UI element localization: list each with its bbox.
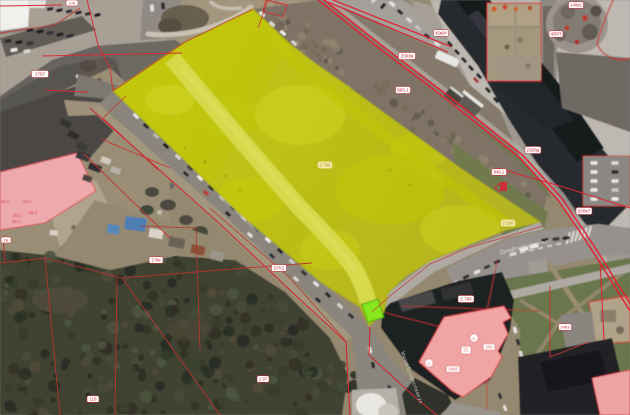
svg-text:140в2: 140в2 — [570, 3, 582, 8]
svg-text:1Б: 1Б — [4, 238, 9, 243]
svg-text:995.1: 995.1 — [397, 88, 409, 93]
svg-text:68.3: 68.3 — [1, 199, 10, 204]
svg-text:45РП: 45РП — [551, 32, 561, 37]
svg-text:24КЗ: 24КЗ — [560, 325, 570, 330]
svg-text:Б7К2: Б7К2 — [274, 266, 285, 271]
svg-text:11: 11 — [463, 348, 468, 354]
svg-text:O: O — [472, 336, 475, 341]
svg-text:17в: 17в — [69, 1, 76, 6]
svg-text:949.1: 949.1 — [494, 170, 505, 175]
svg-text:69.1: 69.1 — [12, 219, 21, 224]
svg-text:2 796: 2 796 — [460, 297, 472, 302]
svg-text:2008в: 2008в — [401, 54, 414, 59]
svg-text:69.4: 69.4 — [29, 210, 38, 215]
svg-text:179в: 179в — [151, 258, 161, 263]
svg-text:69.2: 69.2 — [13, 213, 22, 218]
svg-text:1797: 1797 — [35, 72, 46, 77]
svg-text:45в94: 45в94 — [435, 31, 447, 36]
svg-text:24п2: 24п2 — [448, 367, 458, 372]
svg-text:O: O — [427, 361, 430, 366]
svg-text:2 798: 2 798 — [320, 163, 332, 168]
svg-text:24п: 24п — [486, 345, 493, 350]
svg-text:200в7: 200в7 — [578, 209, 591, 214]
svg-text:11б: 11б — [90, 397, 97, 402]
svg-text:69.3: 69.3 — [23, 199, 32, 204]
svg-text:1 97: 1 97 — [259, 377, 268, 382]
svg-text:2 396: 2 396 — [503, 221, 515, 226]
svg-text:2306д: 2306д — [527, 148, 540, 153]
